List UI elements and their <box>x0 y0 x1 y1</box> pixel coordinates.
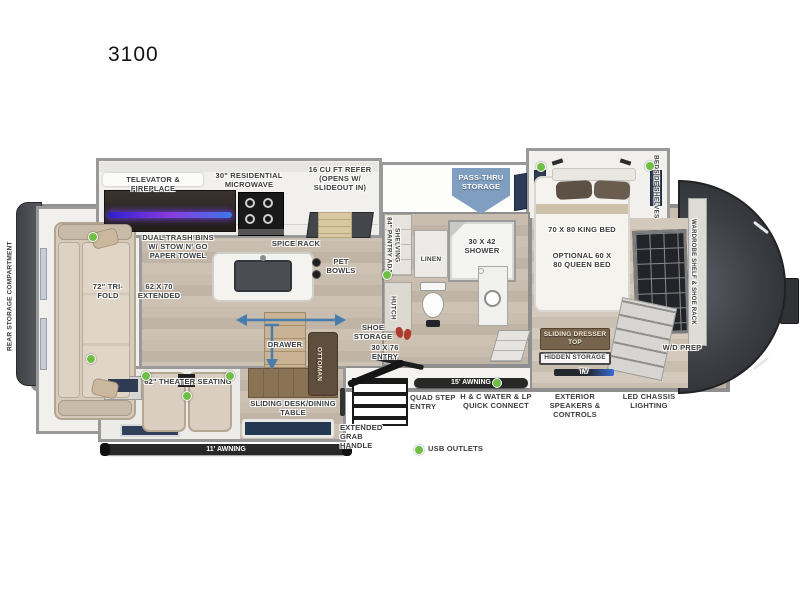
pass-thru-door <box>514 173 527 211</box>
usb-legend-label: USB OUTLETS <box>428 445 488 454</box>
pantry-label: 84" PANTRY ADJ SHELVING <box>385 215 411 275</box>
toilet-tank <box>420 282 446 291</box>
tv-label: TV <box>566 368 602 376</box>
usb-outlet-dot <box>645 161 655 171</box>
usb-outlet-dot <box>536 162 546 172</box>
televator-fireplace-label: TELEVATOR & FIREPLACE <box>103 176 203 194</box>
stove-burner <box>245 198 255 208</box>
entry-door-label: 30 x 76 ENTRY <box>360 344 410 362</box>
fireplace-glow <box>108 212 232 218</box>
wardrobe-label: WARDROBE SHELF & SHOE RACK <box>689 200 706 344</box>
linen-closet <box>414 230 448 278</box>
sliding-dresser-label: SLIDING DRESSER TOP <box>541 331 609 346</box>
usb-outlet-dot <box>86 354 96 364</box>
stove-burner <box>245 214 255 224</box>
pillow <box>594 180 631 200</box>
headboard <box>552 168 636 181</box>
ottoman-label: OTTOMAN <box>315 336 331 392</box>
extended-grab-handle-label: EXTENDED GRAB HANDLE <box>340 424 396 451</box>
drawer-label: DRAWER <box>260 341 310 350</box>
pet-bowl-icon <box>312 270 321 279</box>
faucet-icon <box>260 255 266 261</box>
awning-15-label: 15' AWNING <box>451 379 491 386</box>
stove-burner <box>263 198 273 208</box>
exterior-speakers-label: EXTERIOR SPEAKERS & CONTROLS <box>534 393 616 420</box>
pet-bowls-label: PET BOWLS <box>323 258 359 276</box>
usb-outlet-dot <box>141 371 151 381</box>
usb-outlet-dot <box>88 232 98 242</box>
queen-option-label: OPTIONAL 60 x 80 QUEEN BED <box>552 252 612 270</box>
linen-label: LINEN <box>412 256 450 264</box>
island-sink <box>234 260 292 292</box>
awning-15-bar: 15' AWNING <box>414 378 528 388</box>
king-bed-label: 70 x 80 KING BED <box>546 226 618 235</box>
sofa-label: 72" TRI-FOLD <box>86 283 130 301</box>
pet-bowl-icon <box>312 258 321 267</box>
blanket-fold <box>536 204 628 214</box>
usb-outlet-dot <box>225 371 235 381</box>
pass-thru-label: PASS-THRU STORAGE <box>452 174 510 192</box>
led-chassis-label: LED CHASSIS LIGHTING <box>620 393 678 411</box>
shower-label: 30 x 42 SHOWER <box>454 238 510 256</box>
sofa-back-cushion <box>58 242 80 398</box>
trash-bins-label: DUAL TRASH BINS W/ STOW N' GO PAPER TOWE… <box>138 234 218 261</box>
quad-step-entry-label: QUAD STEP ENTRY <box>410 394 460 412</box>
rear-storage-label: REAR STORAGE COMPARTMENT <box>2 208 14 384</box>
bedside-shelves-label: BEDSIDE SHELVES <box>652 151 666 223</box>
usb-outlet-dot <box>414 445 424 455</box>
sink-icon <box>484 290 501 307</box>
awning-11-label: 11' AWNING <box>206 446 246 453</box>
sofa-extended-label: 62 x 70 EXTENDED <box>134 283 184 301</box>
shower-caddy <box>450 222 466 238</box>
sliding-desk-label: SLIDING DESK/DINING TABLE <box>246 400 340 418</box>
stove-burner <box>263 214 273 224</box>
grab-handle-icon <box>340 388 345 416</box>
floorplan-canvas: 3100 REAR STORAGE COMPARTMENT 72" TRI-FO… <box>0 0 800 600</box>
spice-rack <box>318 212 352 238</box>
wd-prep-label: W/D PREP <box>660 344 704 353</box>
usb-outlet-dot <box>382 270 392 280</box>
entry-steps-icon <box>352 378 408 426</box>
sofa-seat-cushions <box>82 242 130 398</box>
hidden-storage-label: HIDDEN STORAGE <box>539 354 611 362</box>
sofa-window <box>40 318 47 370</box>
usb-outlet-dot <box>492 378 502 388</box>
theater-seating-label: 62" THEATER SEATING <box>140 378 236 387</box>
spice-rack-label: SPICE RACK <box>268 240 324 249</box>
shower-drain <box>478 268 484 274</box>
dining-table <box>242 419 334 438</box>
awning-end-cap <box>100 443 110 456</box>
sofa-window <box>40 248 47 300</box>
usb-outlet-dot <box>182 391 192 401</box>
microwave-label: 30" RESIDENTIAL MICROWAVE <box>212 172 286 190</box>
water-lp-label: H & C WATER & LP QUICK CONNECT <box>456 393 536 411</box>
bath-mat <box>426 320 440 327</box>
oven-handle <box>238 229 284 235</box>
refer-label: 16 CU FT REFER (OPENS W/ SLIDEOUT IN) <box>306 166 374 193</box>
awning-11-bar: 11' AWNING <box>104 444 348 455</box>
sofa-armrest <box>58 400 132 416</box>
shoe-storage-label: SHOE STORAGE <box>350 324 396 342</box>
page-title: 3100 <box>108 44 159 65</box>
pillow <box>556 180 593 200</box>
